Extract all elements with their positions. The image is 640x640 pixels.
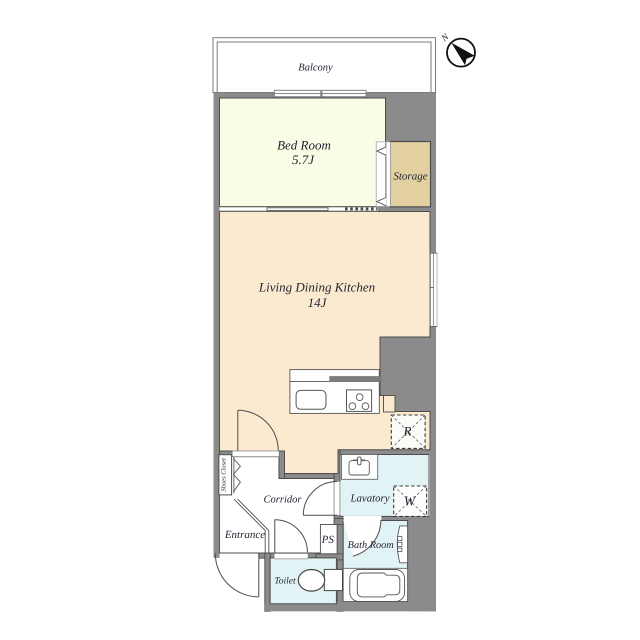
svg-text:5.7J: 5.7J — [292, 152, 315, 167]
svg-text:Storage: Storage — [393, 171, 427, 183]
svg-text:R: R — [403, 424, 412, 439]
svg-text:Balcony: Balcony — [298, 63, 333, 74]
svg-text:Lavatory: Lavatory — [350, 493, 390, 505]
svg-text:W: W — [404, 494, 417, 509]
svg-text:Toilet: Toilet — [274, 577, 296, 587]
svg-text:Bed Room: Bed Room — [277, 138, 331, 153]
svg-text:Bath Room: Bath Room — [348, 540, 394, 551]
svg-text:Shoes Closet: Shoes Closet — [221, 458, 228, 492]
svg-text:PS: PS — [321, 534, 335, 546]
svg-text:14J: 14J — [308, 295, 328, 310]
svg-text:Entrance: Entrance — [224, 529, 265, 541]
svg-text:Corridor: Corridor — [264, 495, 303, 506]
svg-text:Living Dining Kitchen: Living Dining Kitchen — [258, 280, 375, 295]
